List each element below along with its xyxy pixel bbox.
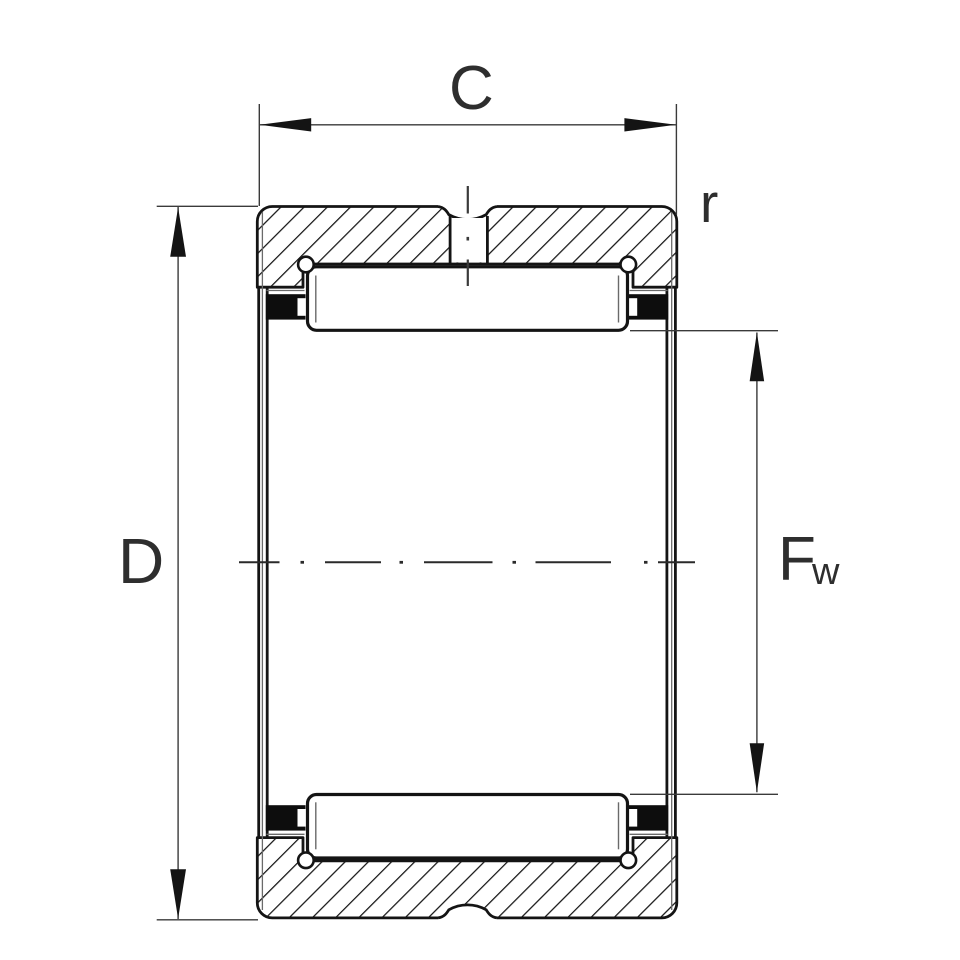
svg-text:r: r xyxy=(700,172,718,234)
svg-text:C: C xyxy=(449,54,494,123)
svg-text:w: w xyxy=(811,551,840,593)
svg-text:D: D xyxy=(118,525,164,597)
svg-text:F: F xyxy=(778,525,816,594)
